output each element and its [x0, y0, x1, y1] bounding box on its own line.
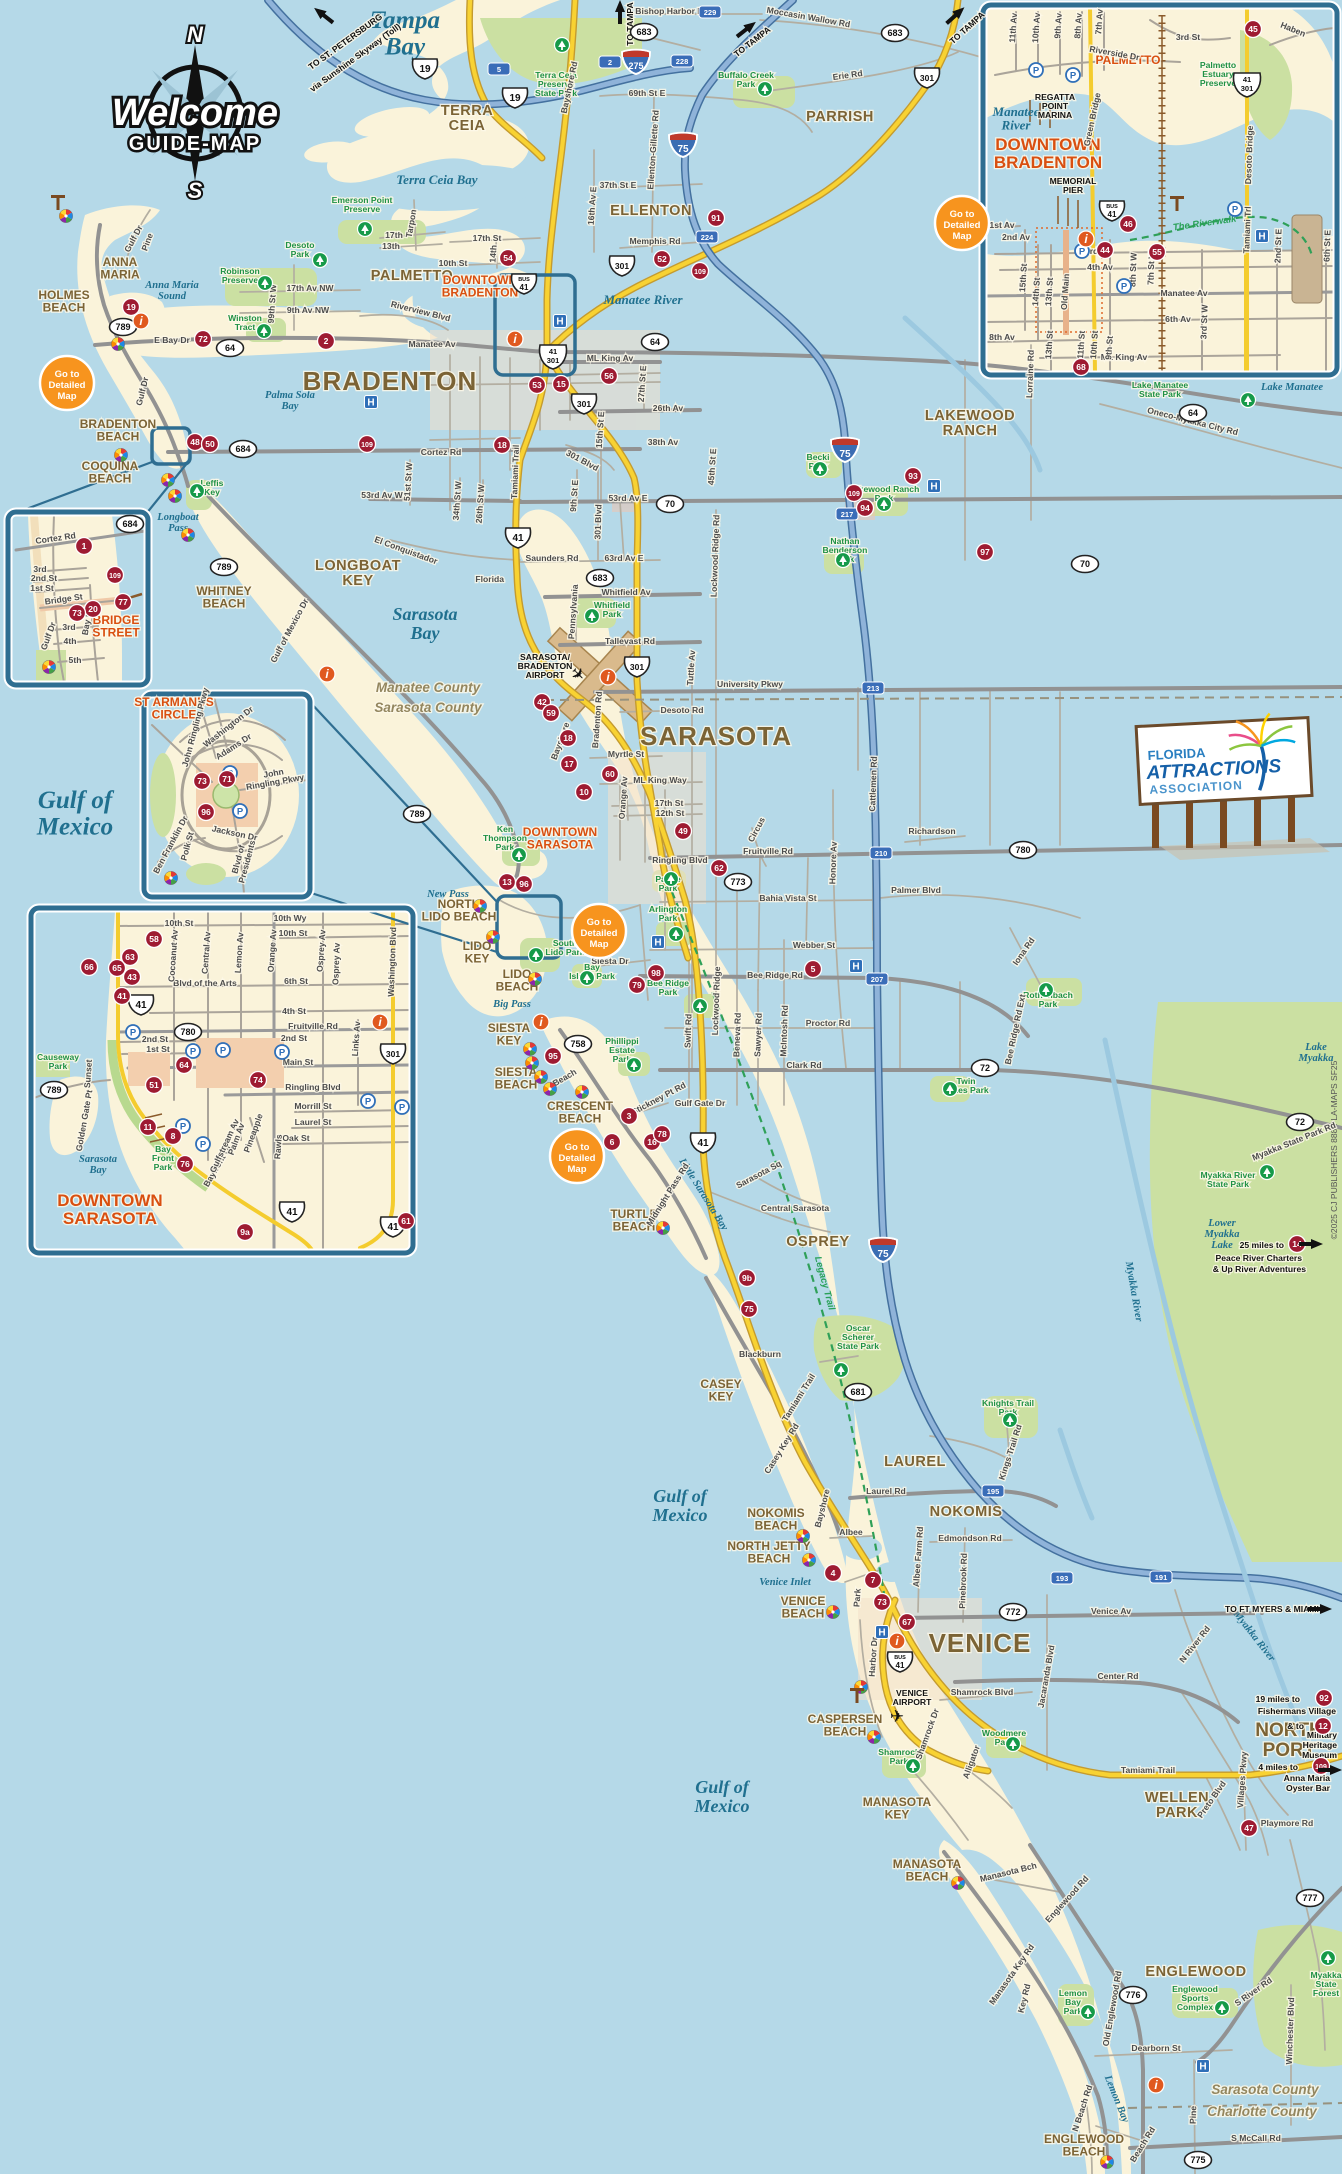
shield-o-70: 70	[657, 496, 684, 513]
label-3rd-st: 3rd St	[1176, 32, 1200, 42]
attraction-marker-72: 72	[195, 331, 212, 348]
attraction-marker-18: 18	[494, 437, 511, 454]
svg-text:H: H	[654, 938, 661, 949]
label-ellenton: ELLENTON	[610, 203, 692, 219]
svg-text:Go to: Go to	[565, 1142, 590, 1153]
svg-text:210: 210	[875, 849, 888, 858]
exit-badge-195: 195	[982, 1485, 1004, 1497]
attraction-marker-55: 55	[1149, 244, 1166, 261]
svg-text:41: 41	[549, 347, 557, 356]
attraction-marker-64: 64	[176, 1057, 193, 1074]
svg-text:Go to: Go to	[587, 917, 612, 928]
svg-text:73: 73	[72, 608, 82, 618]
label-osprey-av: Osprey Av	[330, 942, 341, 985]
svg-text:Detailed: Detailed	[581, 928, 618, 939]
parking-icon: P	[216, 1043, 230, 1057]
svg-text:50: 50	[205, 439, 215, 449]
svg-text:8: 8	[171, 1131, 176, 1141]
attraction-marker-56: 56	[601, 368, 618, 385]
park-tree-icon	[1215, 2001, 1230, 2016]
label-ml-king-av: ML King Av	[587, 353, 634, 363]
beach-ball-icon	[951, 1877, 964, 1890]
attraction-marker-15: 15	[553, 376, 570, 393]
attraction-marker-65: 65	[109, 960, 126, 977]
park-tree-icon	[943, 1082, 958, 1097]
beach-ball-icon	[164, 872, 177, 885]
svg-text:191: 191	[1155, 1573, 1168, 1582]
svg-text:P: P	[220, 1045, 227, 1056]
svg-text:776: 776	[1125, 1990, 1140, 2000]
svg-text:2: 2	[324, 336, 329, 346]
svg-text:684: 684	[235, 444, 250, 454]
label-mcintosh-rd: McIntosh Rd	[778, 1005, 790, 1057]
label-11th-st: 11th St	[1075, 330, 1087, 359]
attraction-marker-46: 46	[1120, 216, 1137, 233]
svg-text:41: 41	[286, 1207, 298, 1218]
parking-icon: P	[361, 1094, 375, 1108]
shield-o-789: 789	[404, 806, 431, 823]
svg-text:275: 275	[628, 61, 643, 71]
label-lake-manatee: Lake Manatee	[1260, 382, 1323, 393]
goto-detailed-map-button[interactable]: Go toDetailedMap	[935, 196, 989, 250]
label-fruitville-rd: Fruitville Rd	[743, 846, 793, 856]
attraction-marker-11: 11	[140, 1119, 157, 1136]
svg-text:93: 93	[908, 471, 918, 481]
label-cortez-rd: Cortez Rd	[421, 447, 462, 457]
svg-text:95: 95	[548, 1051, 558, 1061]
svg-text:41: 41	[520, 283, 529, 292]
shield-o-72: 72	[972, 1060, 999, 1077]
label-lake-manatee-state-park: Lake ManateeState Park	[1132, 380, 1189, 399]
label-venice-airport: VENICEAIRPORT	[893, 1688, 932, 1707]
svg-text:56: 56	[604, 371, 614, 381]
label-6th-av: 6th Av	[1165, 314, 1191, 324]
info-icon: i	[889, 1633, 905, 1649]
svg-text:789: 789	[216, 562, 231, 572]
attraction-marker-96: 96	[198, 804, 215, 821]
hospital-icon: H	[1256, 230, 1269, 243]
beach-ball-icon	[168, 490, 181, 503]
park-tree-icon	[529, 948, 544, 963]
label-cattlemen-rd: Cattlemen Rd	[867, 756, 879, 812]
beach-ball-icon	[181, 529, 194, 542]
attraction-marker-19: 19	[123, 299, 140, 316]
label-dearborn-st: Dearborn St	[1131, 2043, 1180, 2053]
svg-text:Go to: Go to	[55, 369, 80, 380]
svg-text:1: 1	[82, 541, 87, 551]
svg-text:48: 48	[190, 437, 200, 447]
attraction-marker-9b: 9b	[739, 1270, 756, 1287]
logo-caps: GUIDE-MAP	[129, 133, 261, 155]
label-25-miles-to: 25 miles to	[1240, 1240, 1284, 1250]
svg-text:66: 66	[84, 962, 94, 972]
exit-badge-210: 210	[870, 847, 892, 859]
svg-text:5: 5	[497, 65, 501, 74]
beach-ball-icon	[543, 1083, 556, 1096]
attraction-marker-49: 49	[675, 823, 692, 840]
label-shamrock-blvd: Shamrock Blvd	[951, 1687, 1014, 1697]
label-beneva-rd: Beneva Rd	[731, 1013, 743, 1058]
park-tree-icon	[1260, 1165, 1275, 1180]
svg-text:301: 301	[920, 73, 934, 83]
attraction-marker-71: 71	[219, 771, 236, 788]
svg-text:96: 96	[519, 879, 529, 889]
svg-text:63: 63	[125, 952, 135, 962]
beach-ball-icon	[523, 1043, 536, 1056]
label-peace-river-charters: Peace River Charters	[1216, 1253, 1303, 1263]
attraction-marker-1: 1	[76, 538, 93, 555]
label-ringling-blvd: Ringling Blvd	[285, 1082, 340, 1092]
attraction-marker-52: 52	[654, 251, 671, 268]
park-tree-icon	[813, 462, 828, 477]
attraction-marker-92: 92	[1316, 1690, 1333, 1707]
beach-ball-icon	[656, 1222, 669, 1235]
beach-ball-icon	[796, 1530, 809, 1543]
label-37th-st-e: 37th St E	[600, 180, 637, 190]
attraction-marker-97: 97	[977, 544, 994, 561]
label-blvd-of-the-arts: Blvd of the Arts	[173, 978, 237, 988]
svg-text:41: 41	[896, 1661, 905, 1670]
info-icon: i	[600, 669, 616, 685]
label-1st-av: 1st Av	[989, 220, 1014, 230]
label-sarasota: SARASOTA	[640, 721, 792, 751]
label-17th-av-nw: 17th Av NW	[286, 283, 334, 293]
svg-text:64: 64	[650, 337, 660, 347]
label-playmore-rd: Playmore Rd	[1261, 1818, 1314, 1828]
attraction-marker-2: 2	[318, 333, 335, 350]
label-manatee-av: Manatee Av	[408, 339, 455, 349]
attraction-marker-20: 20	[85, 601, 102, 618]
label-26th-av: 26th Av	[653, 403, 684, 413]
svg-text:75: 75	[677, 144, 689, 155]
label-big-pass: Big Pass	[492, 999, 531, 1010]
shield-o-789: 789	[41, 1082, 68, 1099]
beach-ball-icon	[114, 449, 127, 462]
park-tree-icon	[1006, 1737, 1021, 1752]
goto-detailed-map-button[interactable]: Go toDetailedMap	[40, 356, 94, 410]
label-rawls: Rawls	[272, 1134, 284, 1160]
svg-text:684: 684	[122, 519, 137, 529]
svg-text:H: H	[556, 317, 563, 328]
hospital-icon: H	[1197, 2060, 1210, 2073]
label-69th-st-e: 69th St E	[629, 88, 666, 98]
logo-script: Welcome	[112, 92, 278, 134]
label-17th-st: 17th St	[473, 233, 502, 243]
label-to: & to	[1287, 1721, 1304, 1731]
shield-o-776: 776	[1120, 1987, 1147, 2004]
park-tree-icon	[190, 484, 205, 499]
label-10th-av: 10th Av	[1030, 12, 1042, 43]
parking-icon: P	[275, 1045, 289, 1059]
svg-text:58: 58	[149, 934, 159, 944]
label-up-river-adventures: & Up River Adventures	[1213, 1264, 1307, 1274]
label-university-pkwy: University Pkwy	[717, 679, 783, 689]
label-gulf-of-mexico: Gulf ofMexico	[694, 1777, 751, 1816]
guide-map: FLORIDA ATTRACTIONS ASSOCIATION	[0, 0, 1342, 2174]
label-5th: 5th	[69, 655, 82, 665]
label-coquina-beach: COQUINABEACH	[82, 459, 139, 486]
svg-text:52: 52	[657, 254, 667, 264]
label-bay-front-park: BayFrontPark	[152, 1144, 174, 1172]
label-nokomis-beach: NOKOMISBEACH	[747, 1506, 804, 1533]
svg-text:301: 301	[615, 261, 629, 271]
label-palmetto: PALMETTO	[371, 268, 453, 284]
park-tree-icon	[836, 553, 851, 568]
attraction-marker-109: 109	[692, 263, 709, 280]
attraction-marker-67: 67	[899, 1614, 916, 1631]
parking-icon: P	[186, 1044, 200, 1058]
info-icon: i	[133, 313, 149, 329]
label-ml-king-way: ML King Way	[633, 775, 687, 785]
attraction-marker-12: 12	[1315, 1718, 1332, 1735]
label-charlotte-county: Charlotte County	[1207, 2104, 1318, 2119]
attraction-marker-48: 48	[187, 434, 204, 451]
attraction-marker-96: 96	[516, 876, 533, 893]
attraction-marker-59: 59	[543, 705, 560, 722]
shield-o-64: 64	[642, 334, 669, 351]
label-clark-rd: Clark Rd	[786, 1060, 821, 1070]
label-17th-st: 17th St	[655, 798, 684, 808]
svg-text:41: 41	[135, 1000, 147, 1011]
svg-text:49: 49	[678, 826, 688, 836]
label-memphis-rd: Memphis Rd	[629, 236, 680, 246]
svg-text:54: 54	[503, 253, 513, 263]
svg-text:213: 213	[867, 684, 880, 693]
label-ringling-blvd: Ringling Blvd	[652, 855, 707, 865]
beach-ball-icon	[473, 900, 486, 913]
label-10th-st: 10th St	[165, 918, 194, 928]
label-bee-ridge-rd: Bee Ridge Rd	[747, 970, 803, 980]
info-icon: i	[1148, 2077, 1164, 2093]
label-1st-st: 1st St	[146, 1044, 170, 1054]
label-laurel: LAUREL	[884, 1454, 946, 1470]
label-swift-rd: Swift Rd	[682, 1014, 693, 1049]
svg-text:67: 67	[902, 1617, 912, 1627]
park-tree-icon	[758, 82, 773, 97]
label-15th-st: 15th St	[1017, 263, 1029, 292]
label-robinson-preserve: RobinsonPreserve	[220, 266, 260, 285]
label-sunset: Sunset	[82, 1059, 94, 1088]
label-sarasota-county: Sarasota County	[1211, 2082, 1320, 2097]
label-19-miles-to: 19 miles to	[1256, 1694, 1300, 1704]
attraction-marker-73: 73	[69, 605, 86, 622]
label-1st-st: 1st St	[30, 583, 54, 593]
parking-icon: P	[196, 1137, 210, 1151]
exit-badge-191: 191	[1150, 1571, 1172, 1583]
svg-text:773: 773	[730, 877, 745, 887]
compass-south: S	[188, 178, 203, 203]
label-9th-st: 9th St	[1103, 335, 1115, 360]
label-fishermans-village: Fishermans Village	[1258, 1706, 1336, 1716]
parking-icon: P	[233, 804, 247, 818]
shield-o-780: 780	[175, 1024, 202, 1041]
label-53rd-av-w: 53rd Av W	[361, 490, 403, 500]
svg-text:41: 41	[117, 991, 127, 1001]
beach-ball-icon	[42, 661, 55, 674]
svg-text:59: 59	[546, 708, 556, 718]
beach-ball-icon	[486, 931, 499, 944]
parking-icon: P	[395, 1100, 409, 1114]
attraction-marker-17: 17	[561, 756, 578, 773]
attraction-marker-94: 94	[857, 500, 874, 517]
svg-text:207: 207	[871, 975, 884, 984]
label-downtown-bradenton: DOWNTOWNBRADENTON	[442, 273, 518, 300]
label-sawyer-rd: Sawyer Rd	[752, 1013, 764, 1057]
label-nokomis: NOKOMIS	[930, 1504, 1003, 1520]
exit-badge-193: 193	[1051, 1572, 1073, 1584]
shield-o-64: 64	[1180, 405, 1207, 422]
shield-o-684: 684	[117, 516, 144, 533]
attraction-marker-54: 54	[500, 250, 517, 267]
svg-text:70: 70	[665, 499, 675, 509]
svg-text:65: 65	[112, 963, 122, 973]
svg-text:H: H	[367, 398, 374, 409]
svg-text:15: 15	[556, 379, 566, 389]
svg-text:301: 301	[577, 399, 591, 409]
svg-text:2: 2	[608, 58, 612, 67]
label-whitfield-av: Whitfield Av	[601, 587, 650, 597]
svg-text:70: 70	[1080, 559, 1090, 569]
label-bradenton: BRADENTON	[303, 366, 478, 396]
svg-text:19: 19	[419, 64, 431, 75]
label-tamiami-trail: Tamiami Trail	[1121, 1765, 1175, 1775]
svg-text:73: 73	[197, 776, 207, 786]
airport-plane-icon: ✈	[890, 1707, 904, 1726]
beach-ball-icon	[575, 1086, 588, 1099]
label-e-bay-dr: E Bay Dr	[154, 335, 190, 345]
svg-text:Map: Map	[58, 391, 77, 402]
label-oyster-bar: Oyster Bar	[1286, 1783, 1331, 1793]
park-tree-icon	[627, 1058, 642, 1073]
svg-text:H: H	[1258, 232, 1265, 243]
label-proctor-rd: Proctor Rd	[806, 1018, 850, 1028]
label-main-st: Main St	[283, 1057, 314, 1067]
exit-badge-207: 207	[866, 973, 888, 985]
svg-text:46: 46	[1123, 219, 1133, 229]
beach-ball-icon	[59, 209, 72, 222]
label-albee: Albee	[839, 1527, 863, 1537]
beach-ball-icon	[1100, 2156, 1113, 2169]
svg-text:9b: 9b	[742, 1273, 752, 1283]
label-venice-av: Venice Av	[1091, 1606, 1131, 1616]
shield-o-780: 780	[1010, 842, 1037, 859]
svg-text:780: 780	[1015, 845, 1030, 855]
exit-badge-213: 213	[862, 682, 884, 694]
attraction-marker-73: 73	[874, 1594, 891, 1611]
label-terra-ceia-bay: Terra Ceia Bay	[396, 172, 477, 187]
label-4th-st: 4th St	[282, 1006, 306, 1016]
copyright-text: ©2025 CJ PUBLISHERS 888-FLA-MAPS SF25	[1329, 1060, 1339, 1239]
park-tree-icon	[313, 253, 328, 268]
label-9th-av: 9th Av	[1052, 12, 1064, 38]
svg-text:45: 45	[1248, 24, 1258, 34]
svg-text:681: 681	[850, 1387, 865, 1397]
beach-ball-icon	[867, 1731, 880, 1744]
park-tree-icon	[555, 38, 570, 53]
svg-text:Detailed: Detailed	[559, 1153, 596, 1164]
exit-badge-224: 224	[696, 231, 718, 243]
label-myakka-river-state-park: Myakka RiverState Park	[1201, 1170, 1257, 1189]
shield-o-772: 772	[1000, 1604, 1027, 1621]
park-tree-icon	[834, 1363, 849, 1378]
label-2nd-av: 2nd Av	[1002, 232, 1030, 242]
label-13th-st: 13th St	[1043, 330, 1055, 359]
goto-detailed-map-button[interactable]: Go toDetailedMap	[550, 1129, 604, 1183]
shield-o-789: 789	[211, 559, 238, 576]
attraction-marker-4: 4	[825, 1565, 842, 1582]
label-desoto-bridge: Desoto Bridge	[1243, 125, 1255, 184]
label-bahia-vista-st: Bahia Vista St	[759, 893, 816, 903]
attraction-marker-79: 79	[629, 977, 646, 994]
attraction-marker-91: 91	[708, 210, 725, 227]
svg-text:P: P	[130, 1027, 137, 1038]
hospital-icon: H	[365, 396, 378, 409]
svg-text:13: 13	[502, 877, 512, 887]
svg-text:780: 780	[180, 1027, 195, 1037]
svg-text:9a: 9a	[240, 1227, 250, 1237]
goto-detailed-map-button[interactable]: Go toDetailedMap	[572, 904, 626, 958]
label-gulf-gate-dr: Gulf Gate Dr	[675, 1098, 726, 1108]
label-parrish: PARRISH	[806, 109, 874, 125]
svg-text:P: P	[1070, 70, 1077, 81]
svg-text:224: 224	[701, 233, 714, 242]
svg-text:Detailed: Detailed	[49, 380, 86, 391]
svg-text:789: 789	[409, 809, 424, 819]
beach-ball-icon	[525, 1057, 538, 1070]
label-tamiami-trl: Tamiami Trl	[1241, 206, 1253, 253]
label-anna-maria: ANNAMARIA	[100, 255, 140, 282]
park-tree-icon	[257, 324, 272, 339]
beach-ball-icon	[802, 1554, 815, 1567]
parking-icon: P	[1029, 63, 1043, 77]
attraction-marker-62: 62	[711, 860, 728, 877]
label-manatee-av: Manatee Av	[1160, 288, 1207, 298]
svg-text:Go to: Go to	[950, 209, 975, 220]
label-3rd-st-w: 3rd St W	[1198, 303, 1209, 339]
svg-text:H: H	[852, 962, 859, 973]
attraction-marker-68: 68	[1073, 359, 1090, 376]
attraction-marker-6: 6	[604, 1134, 621, 1151]
label-s-mccall-rd: S McCall Rd	[1231, 2133, 1281, 2143]
label-edmondson-rd: Edmondson Rd	[938, 1533, 1002, 1543]
park-tree-icon	[358, 222, 373, 237]
svg-text:109: 109	[361, 442, 373, 449]
svg-text:H: H	[930, 482, 937, 493]
svg-text:73: 73	[877, 1597, 887, 1607]
label-13th-st: 13th St	[1043, 277, 1055, 306]
svg-text:P: P	[1079, 246, 1086, 257]
label-4-miles-to: 4 miles to	[1258, 1762, 1298, 1772]
hospital-icon: H	[850, 960, 863, 973]
attraction-marker-45: 45	[1245, 21, 1262, 38]
info-icon: i	[319, 666, 335, 682]
label-morrill-st: Morrill St	[294, 1101, 331, 1111]
beach-ball-icon	[534, 1071, 547, 1084]
park-tree-icon	[1321, 1951, 1336, 1966]
label-whitney-beach: WHITNEYBEACH	[196, 584, 251, 611]
label-sarasota-county: Sarasota County	[374, 700, 483, 715]
exit-badge-228: 228	[671, 55, 693, 67]
svg-text:51: 51	[149, 1080, 159, 1090]
svg-text:18: 18	[563, 733, 573, 743]
svg-text:758: 758	[570, 1039, 585, 1049]
shield-o-70: 70	[1072, 556, 1099, 573]
label-4th: 4th	[64, 636, 77, 646]
svg-text:55: 55	[1152, 247, 1162, 257]
svg-text:19: 19	[126, 302, 136, 312]
label-bridge-street: BRIDGESTREET	[92, 613, 140, 640]
exit-badge-217: 217	[836, 508, 858, 520]
